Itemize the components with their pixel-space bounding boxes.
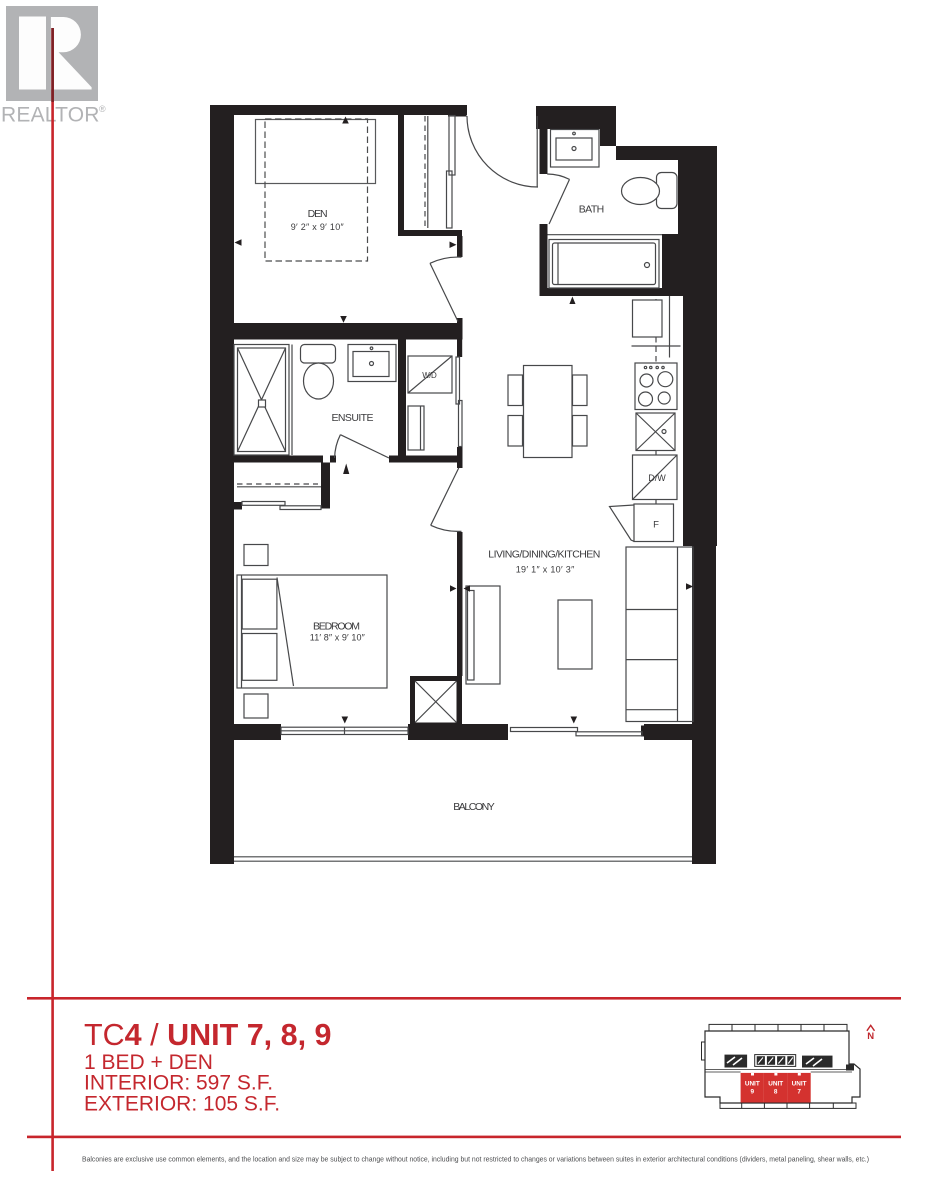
svg-text:11′ 8″ x 9′ 10″: 11′ 8″ x 9′ 10″ <box>310 632 366 642</box>
svg-text:BEDROOM: BEDROOM <box>313 621 360 633</box>
svg-text:®: ® <box>99 104 106 114</box>
svg-text:Balconies are exclusive use co: Balconies are exclusive use common eleme… <box>82 1155 869 1164</box>
svg-text:REALTOR: REALTOR <box>1 104 100 127</box>
svg-text:7: 7 <box>797 1089 801 1096</box>
svg-text:BATH: BATH <box>579 203 605 215</box>
svg-text:UNIT: UNIT <box>768 1081 783 1088</box>
svg-text:D/W: D/W <box>648 473 666 483</box>
svg-text:INTERIOR: 597 S.F.: INTERIOR: 597 S.F. <box>84 1072 273 1095</box>
svg-text:W/D: W/D <box>422 371 437 380</box>
svg-text:1 BED + DEN: 1 BED + DEN <box>84 1051 213 1074</box>
svg-text:LIVING/DINING/KITCHEN: LIVING/DINING/KITCHEN <box>488 549 600 561</box>
svg-text:F: F <box>653 520 659 531</box>
svg-text:BALCONY: BALCONY <box>453 801 495 813</box>
svg-text:UNIT: UNIT <box>792 1081 807 1088</box>
svg-text:9: 9 <box>751 1089 755 1096</box>
svg-text:8: 8 <box>774 1089 778 1096</box>
svg-text:EXTERIOR: 105 S.F.: EXTERIOR: 105 S.F. <box>84 1093 280 1116</box>
svg-text:UNIT: UNIT <box>745 1081 760 1088</box>
svg-text:19′ 1″ x 10′ 3″: 19′ 1″ x 10′ 3″ <box>516 564 575 574</box>
svg-text:N: N <box>867 1031 874 1042</box>
svg-text:TC4 / UNIT 7, 8, 9: TC4 / UNIT 7, 8, 9 <box>84 1018 331 1052</box>
svg-text:DEN: DEN <box>308 208 328 220</box>
svg-text:9′ 2″ x 9′ 10″: 9′ 2″ x 9′ 10″ <box>291 222 345 232</box>
svg-text:ENSUITE: ENSUITE <box>332 412 374 424</box>
